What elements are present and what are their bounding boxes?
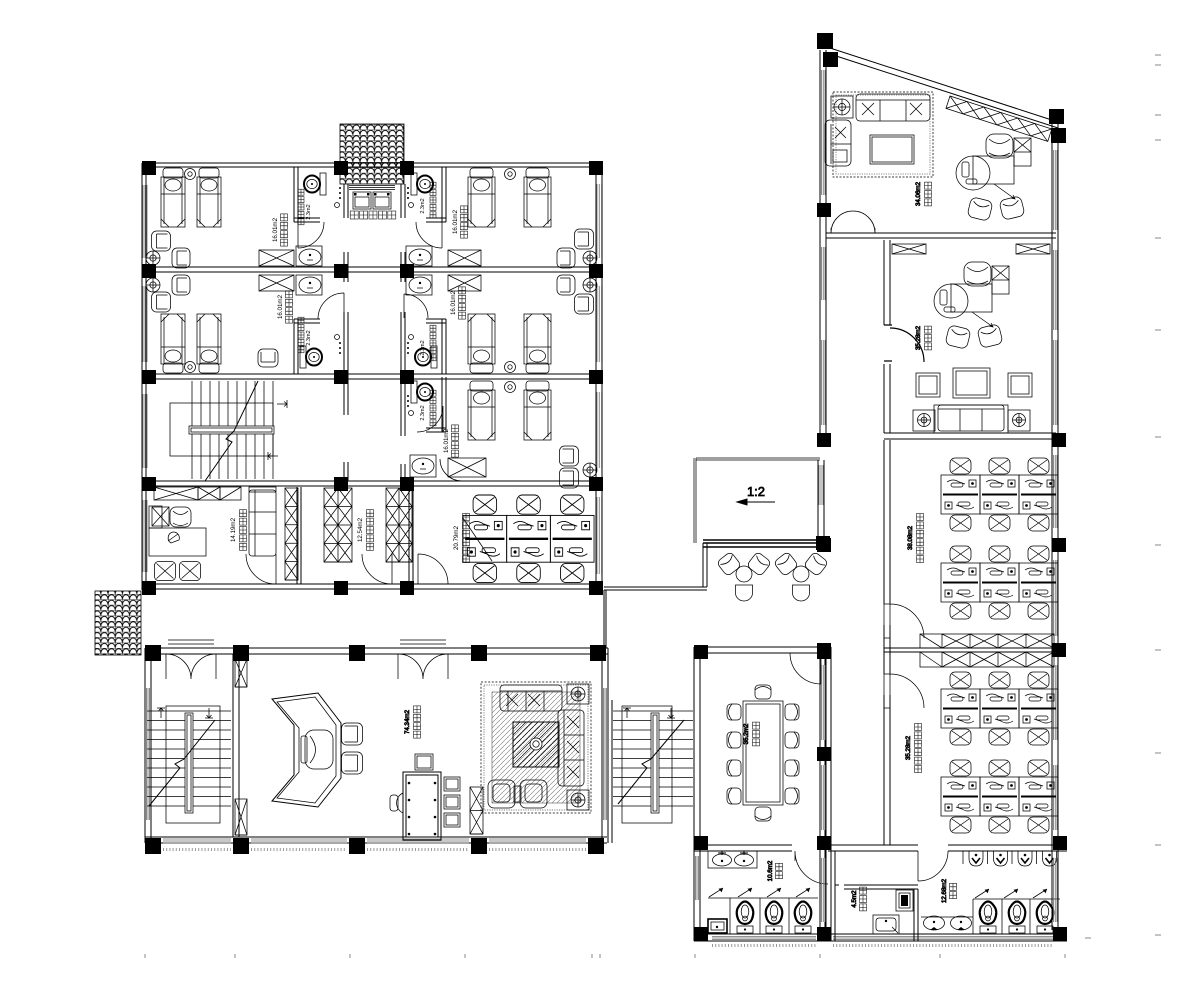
svg-text:2.3m2: 2.3m2 (420, 340, 426, 355)
svg-text:35.28m2: 35.28m2 (915, 325, 922, 350)
svg-text:35.2m2: 35.2m2 (743, 723, 750, 744)
svg-text:12.68m2: 12.68m2 (941, 878, 948, 903)
svg-text:2.3m2: 2.3m2 (420, 405, 426, 420)
svg-text:34.06m2: 34.06m2 (915, 181, 922, 206)
svg-text:35.28m2: 35.28m2 (905, 735, 912, 760)
svg-text:16.01m2: 16.01m2 (272, 217, 279, 242)
svg-text:1:2: 1:2 (747, 484, 765, 499)
svg-text:2.3m2: 2.3m2 (420, 198, 426, 213)
svg-text:2.3m2: 2.3m2 (306, 204, 312, 219)
svg-text:14.19m2: 14.19m2 (230, 517, 237, 542)
svg-text:16.01m2: 16.01m2 (450, 290, 457, 315)
svg-text:20.79m2: 20.79m2 (453, 525, 460, 550)
svg-text:10.6m2: 10.6m2 (767, 860, 774, 881)
svg-text:16.01m2: 16.01m2 (443, 428, 450, 453)
svg-text:12.54m2: 12.54m2 (357, 517, 364, 542)
svg-text:4.5m2: 4.5m2 (851, 890, 858, 908)
svg-text:2.3m2: 2.3m2 (306, 330, 312, 345)
svg-text:38.08m2: 38.08m2 (907, 525, 914, 550)
svg-text:16.01m2: 16.01m2 (277, 294, 284, 319)
svg-text:16.01m2: 16.01m2 (452, 209, 459, 234)
svg-text:74.34m2: 74.34m2 (404, 709, 411, 734)
